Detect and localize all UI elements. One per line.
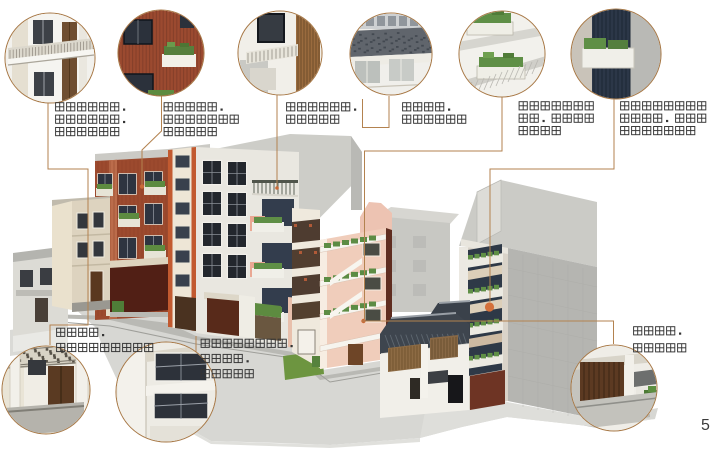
svg-text:5: 5 — [701, 417, 710, 434]
